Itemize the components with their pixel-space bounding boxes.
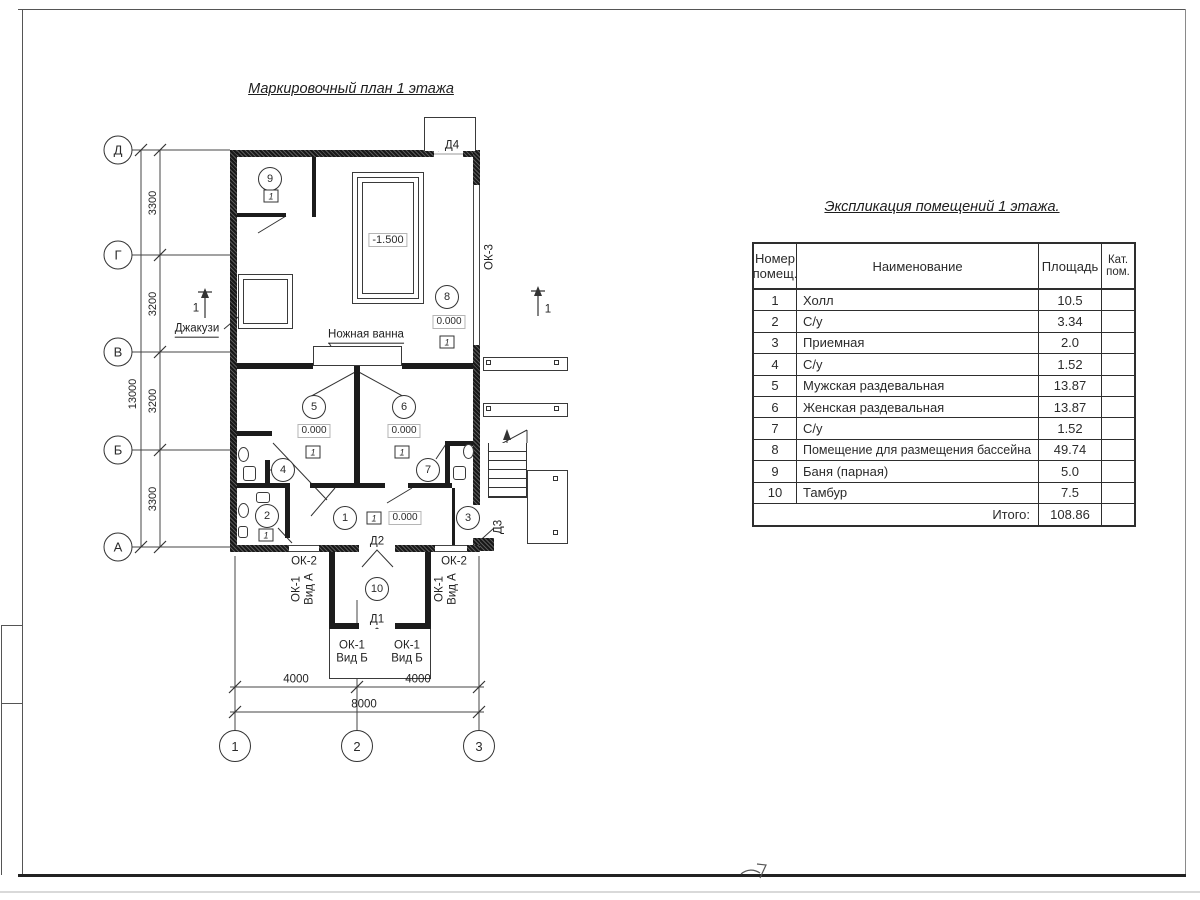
- label-ok1: ОК-1: [336, 639, 368, 652]
- wall-left: [230, 150, 237, 552]
- col-header-number: Номер помещ.: [754, 244, 797, 290]
- level-mark: 0.000: [388, 511, 421, 525]
- label-window-ok2-left: ОК-2: [291, 556, 317, 569]
- dim-8000: 8000: [351, 699, 377, 712]
- wall-room4-right: [265, 460, 270, 488]
- bench-post: [486, 360, 491, 365]
- cell-cat: [1102, 354, 1134, 375]
- cell-area: 5.0: [1039, 461, 1102, 482]
- cell-cat: [1102, 440, 1134, 461]
- cell-name: С/у: [797, 354, 1039, 375]
- label-jacuzzi: Джакузи: [175, 323, 219, 338]
- wall-right-middle: [473, 345, 480, 505]
- floor-type-marker: 1: [440, 336, 455, 349]
- label-ok1-view-b-right: ОК-1 Вид Б: [391, 639, 423, 664]
- label-door-d1: Д1: [368, 614, 386, 627]
- toilet: [238, 503, 249, 518]
- dim-13000: 13000: [127, 379, 139, 410]
- label-ok1-view-a-left: ОК-1 Вид А: [290, 573, 315, 605]
- room-marker-10: 10: [365, 577, 389, 601]
- cell-num: 5: [754, 376, 797, 397]
- label-window-ok3: ОК-3: [484, 244, 497, 270]
- cell-cat: [1102, 311, 1134, 332]
- platform-post: [553, 530, 558, 535]
- window-ok2-left: [289, 545, 319, 552]
- room-marker-1: 1: [333, 506, 357, 530]
- dim-4000-left: 4000: [283, 674, 309, 687]
- label-ok1-view-b-left: ОК-1 Вид Б: [336, 639, 368, 664]
- room-marker-4: 4: [271, 458, 295, 482]
- total-label: Итого:: [754, 504, 1039, 525]
- level-mark-pool: -1.500: [368, 233, 407, 247]
- wall-right-upper: [473, 150, 480, 185]
- label-view-a: Вид А: [446, 573, 459, 605]
- cell-area: 2.0: [1039, 333, 1102, 354]
- wall-bottom-3: [395, 545, 435, 552]
- wall-top-left: [230, 150, 434, 157]
- sink: [256, 492, 270, 503]
- wall-bottom-1: [230, 545, 289, 552]
- room-marker-6: 6: [392, 395, 416, 419]
- cell-name: Мужская раздевальная: [797, 376, 1039, 397]
- label-ok1: ОК-1: [290, 573, 303, 605]
- section-mark-left: 1: [193, 303, 199, 316]
- level-mark: 0.000: [387, 424, 420, 438]
- axis-circle-a: А: [104, 533, 133, 562]
- cell-name: Холл: [797, 290, 1039, 311]
- window-ok3: [473, 185, 480, 345]
- cell-name: Приемная: [797, 333, 1039, 354]
- room-marker-9: 9: [258, 167, 282, 191]
- col-header-name: Наименование: [797, 244, 1039, 290]
- sink: [453, 466, 466, 480]
- cell-num: 1: [754, 290, 797, 311]
- cell-num: 6: [754, 397, 797, 418]
- cell-cat: [1102, 461, 1134, 482]
- label-door-d2: Д2: [368, 536, 386, 549]
- axis-circle-b: Б: [104, 436, 133, 465]
- floor-type-marker: 1: [259, 529, 274, 542]
- label-foot-bath: Ножная ванна: [328, 329, 404, 344]
- wall-tambour-right: [425, 552, 431, 629]
- floor-type-marker: 1: [306, 446, 321, 459]
- wall-tambour-left: [329, 552, 335, 629]
- cell-name: Тамбур: [797, 483, 1039, 504]
- cell-area: 7.5: [1039, 483, 1102, 504]
- cell-num: 10: [754, 483, 797, 504]
- dim-3200-upper: 3200: [147, 292, 159, 316]
- cell-num: 4: [754, 354, 797, 375]
- jacuzzi-inner: [243, 279, 288, 324]
- wall-main-horiz-left: [237, 363, 313, 369]
- cell-num: 9: [754, 461, 797, 482]
- cell-area: 1.52: [1039, 354, 1102, 375]
- platform-post: [553, 476, 558, 481]
- wall-room4-top: [237, 431, 272, 436]
- axis-circle-2: 2: [341, 730, 373, 762]
- total-value: 108.86: [1039, 504, 1102, 525]
- floor-type-marker: 1: [367, 512, 382, 525]
- wall-room2-right: [285, 488, 290, 538]
- total-cat: [1102, 504, 1134, 525]
- dim-4000-right: 4000: [405, 674, 431, 687]
- section-mark-right: 1: [545, 304, 551, 317]
- wall-lower-horiz-b: [310, 483, 385, 488]
- level-mark: 0.000: [297, 424, 330, 438]
- toilet: [238, 447, 249, 462]
- cell-cat: [1102, 397, 1134, 418]
- axis-circle-1: 1: [219, 730, 251, 762]
- wall-room3-left: [452, 488, 455, 545]
- cell-cat: [1102, 376, 1134, 397]
- col-header-area: Площадь: [1039, 244, 1102, 290]
- cell-name: С/у: [797, 418, 1039, 439]
- dim-3200-lower: 3200: [147, 389, 159, 413]
- wall-stub-d3: [480, 538, 494, 551]
- cell-area: 10.5: [1039, 290, 1102, 311]
- room-marker-2: 2: [255, 504, 279, 528]
- col-header-category: Кат. пом.: [1102, 244, 1134, 290]
- cell-cat: [1102, 290, 1134, 311]
- room-marker-5: 5: [302, 395, 326, 419]
- axis-circle-3: 3: [463, 730, 495, 762]
- wall-bottom-4: [467, 545, 480, 552]
- bench-post: [486, 406, 491, 411]
- cell-name: Помещение для размещения бассейна: [797, 440, 1039, 461]
- scanned-drawing-sheet: { "plan": { "title": "Маркировочный план…: [0, 0, 1200, 900]
- cell-area: 13.87: [1039, 397, 1102, 418]
- label-view-a: Вид А: [303, 573, 316, 605]
- bench-post: [554, 360, 559, 365]
- cell-name: Баня (парная): [797, 461, 1039, 482]
- cell-name: Женская раздевальная: [797, 397, 1039, 418]
- label-view-b: Вид Б: [391, 652, 423, 665]
- label-ok1: ОК-1: [433, 573, 446, 605]
- cell-cat: [1102, 333, 1134, 354]
- cell-num: 3: [754, 333, 797, 354]
- explication-table: Номер помещ. Наименование Площадь Кат. п…: [752, 242, 1136, 527]
- floor-type-marker: 1: [264, 190, 279, 203]
- cell-area: 1.52: [1039, 418, 1102, 439]
- wall-central-vertical: [354, 366, 360, 488]
- label-window-ok2-right: ОК-2: [441, 556, 467, 569]
- dim-3300-top: 3300: [147, 191, 159, 215]
- bench-post: [554, 406, 559, 411]
- room-marker-8: 8: [435, 285, 459, 309]
- stairs: [488, 443, 527, 498]
- cell-cat: [1102, 483, 1134, 504]
- sink: [238, 526, 248, 538]
- toilet: [463, 444, 474, 459]
- level-mark: 0.000: [432, 315, 465, 329]
- label-ok1: ОК-1: [391, 639, 423, 652]
- dim-3300-bottom: 3300: [147, 487, 159, 511]
- window-ok2-right: [435, 545, 467, 552]
- room-marker-7: 7: [416, 458, 440, 482]
- wall-main-horiz-right: [402, 363, 473, 369]
- axis-circle-v: В: [104, 338, 133, 367]
- cell-cat: [1102, 418, 1134, 439]
- entry-platform: [527, 470, 568, 544]
- cell-area: 13.87: [1039, 376, 1102, 397]
- floor-type-marker: 1: [395, 446, 410, 459]
- axis-circle-g: Г: [104, 241, 133, 270]
- cell-name: С/у: [797, 311, 1039, 332]
- wall-bottom-2: [319, 545, 359, 552]
- cell-area: 49.74: [1039, 440, 1102, 461]
- label-door-d4: Д4: [443, 140, 461, 153]
- room-marker-3: 3: [456, 506, 480, 530]
- label-view-b: Вид Б: [336, 652, 368, 665]
- axis-circle-d: Д: [104, 136, 133, 165]
- label-ok1-view-a-right: ОК-1 Вид А: [433, 573, 458, 605]
- cell-num: 2: [754, 311, 797, 332]
- sink: [243, 466, 256, 481]
- wall-room7-left: [445, 443, 450, 488]
- cell-num: 8: [754, 440, 797, 461]
- cell-num: 7: [754, 418, 797, 439]
- foot-bath: [313, 346, 402, 366]
- wall-lower-horiz-a: [237, 483, 290, 488]
- label-door-d3: Д3: [493, 520, 506, 534]
- cell-area: 3.34: [1039, 311, 1102, 332]
- wall-room9-vertical: [312, 157, 316, 217]
- wall-room9-horizontal: [237, 213, 286, 217]
